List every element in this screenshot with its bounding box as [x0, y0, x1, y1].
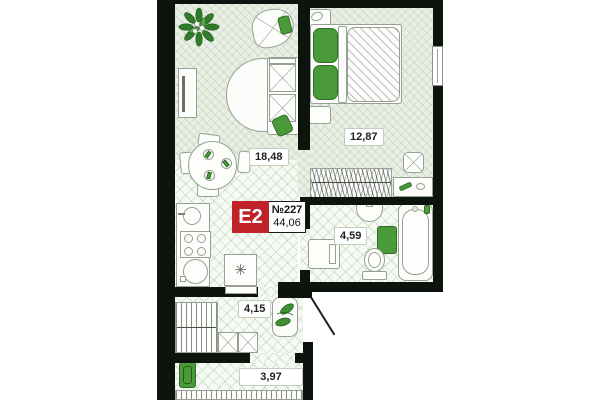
unit-type-badge: E2	[232, 201, 269, 233]
burner	[197, 247, 206, 256]
stool	[403, 152, 424, 173]
wardrobe	[310, 168, 392, 198]
shoe-cabinet	[238, 332, 258, 353]
wardrobe-rod	[312, 182, 390, 183]
mirror-icon	[416, 183, 425, 190]
sponge-icon	[424, 205, 430, 214]
doormat-inner	[183, 366, 192, 384]
entrance-door-icon	[310, 297, 335, 335]
room-area-label-bedroom: 12,87	[344, 128, 384, 146]
mattress	[347, 27, 400, 102]
room-area-label-corridor: 3,97	[239, 368, 303, 386]
floor-bedroom-doorway	[298, 150, 310, 197]
sofa-cushion	[269, 64, 296, 92]
room-area-label-bathroom: 4,59	[334, 227, 367, 245]
floor-plan: ✳	[0, 0, 600, 400]
blanket-fold	[338, 26, 347, 103]
snowflake-icon: ✳	[234, 261, 247, 279]
room-area-label-hallway: 4,15	[238, 300, 271, 318]
kitchen-basin	[183, 259, 208, 284]
fridge: ✳	[224, 254, 257, 286]
burner	[197, 234, 206, 243]
hall-bench	[225, 286, 257, 294]
wall	[303, 342, 313, 400]
tv-icon	[182, 76, 185, 112]
toilet-tank	[362, 271, 387, 280]
basin-handle	[180, 276, 186, 282]
kitchen-tap-icon	[178, 213, 185, 215]
floor-hall-corridor-pass	[250, 353, 295, 363]
unit-badge: E2 №227 44,06	[232, 201, 306, 233]
bed-pillow	[313, 65, 338, 100]
corridor-closet	[175, 390, 303, 400]
wall	[298, 8, 310, 150]
wall	[278, 282, 312, 298]
burner	[184, 234, 193, 243]
hall-wardrobe-rod	[177, 327, 216, 328]
wall	[312, 282, 443, 292]
burner	[184, 247, 193, 256]
bed-pillow	[313, 28, 338, 63]
plant-icon	[178, 6, 220, 48]
bathtub-faucet-icon	[412, 206, 418, 212]
slippers-icon	[273, 300, 297, 334]
wall	[298, 0, 443, 8]
bathtub-basin	[402, 209, 429, 275]
unit-area: 44,06	[273, 217, 301, 230]
room-area-label-living-kitchen: 18,48	[249, 148, 289, 166]
sofa-armrest	[269, 58, 296, 64]
wall	[175, 353, 250, 363]
window-glass-line	[437, 49, 438, 83]
tv-stand	[178, 68, 197, 118]
window	[432, 46, 443, 86]
toilet-seat	[368, 252, 381, 268]
washing-machine-door	[329, 244, 336, 264]
wall	[300, 197, 443, 205]
unit-number: №227	[272, 204, 303, 217]
kitchen-sink	[183, 207, 201, 225]
unit-info-box: №227 44,06	[269, 201, 306, 233]
wall	[157, 0, 175, 400]
shoe-cabinet	[218, 332, 238, 353]
wall	[433, 0, 443, 292]
